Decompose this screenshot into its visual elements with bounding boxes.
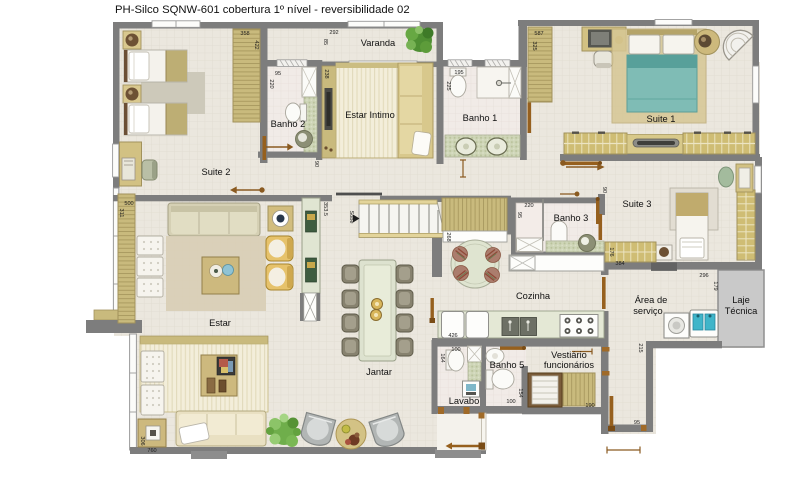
svg-text:384: 384 xyxy=(615,261,624,267)
svg-text:Lavabo: Lavabo xyxy=(449,396,480,406)
svg-text:serviço: serviço xyxy=(633,306,662,316)
svg-text:95: 95 xyxy=(634,420,640,426)
svg-text:760: 760 xyxy=(147,448,156,454)
svg-text:Varanda: Varanda xyxy=(361,38,396,48)
svg-text:268: 268 xyxy=(445,232,451,241)
svg-text:90: 90 xyxy=(313,161,319,167)
svg-text:325: 325 xyxy=(531,41,537,50)
svg-text:195: 195 xyxy=(454,70,463,76)
svg-text:306: 306 xyxy=(139,436,145,445)
svg-text:Banho 3: Banho 3 xyxy=(554,213,589,223)
svg-text:296: 296 xyxy=(699,273,708,279)
svg-text:Sobe: Sobe xyxy=(348,210,354,223)
svg-text:90: 90 xyxy=(601,187,607,193)
svg-text:Estar: Estar xyxy=(209,318,231,328)
svg-text:353.5: 353.5 xyxy=(322,202,328,216)
svg-text:164: 164 xyxy=(439,353,445,362)
svg-text:Cozinha: Cozinha xyxy=(516,291,551,301)
svg-text:292: 292 xyxy=(329,30,338,36)
svg-text:Suite 1: Suite 1 xyxy=(647,114,676,124)
svg-text:587: 587 xyxy=(534,31,543,37)
svg-text:Suite 2: Suite 2 xyxy=(202,167,231,177)
svg-text:Suite 3: Suite 3 xyxy=(623,199,652,209)
svg-text:311: 311 xyxy=(118,209,124,218)
svg-text:176: 176 xyxy=(608,247,614,256)
svg-text:PH-Silco SQNW-601 cobertura 1º: PH-Silco SQNW-601 cobertura 1º nível - r… xyxy=(115,4,410,16)
svg-text:Laje: Laje xyxy=(732,295,750,305)
svg-text:358: 358 xyxy=(240,31,249,37)
svg-text:Banho 2: Banho 2 xyxy=(271,119,306,129)
svg-text:85: 85 xyxy=(322,39,328,45)
svg-text:Técnica: Técnica xyxy=(725,306,758,316)
svg-text:154: 154 xyxy=(517,388,523,397)
svg-text:95: 95 xyxy=(516,212,522,218)
svg-text:Jantar: Jantar xyxy=(366,367,392,377)
svg-text:220: 220 xyxy=(524,203,533,209)
svg-text:Banho 1: Banho 1 xyxy=(463,113,498,123)
svg-text:funcionários: funcionários xyxy=(544,360,594,370)
svg-text:220: 220 xyxy=(268,79,274,88)
svg-text:100: 100 xyxy=(506,399,515,405)
svg-text:179: 179 xyxy=(712,281,718,290)
svg-text:Área de: Área de xyxy=(635,295,668,305)
svg-text:Estar Intimo: Estar Intimo xyxy=(345,110,395,120)
svg-text:238: 238 xyxy=(323,69,329,78)
svg-text:Banho 5: Banho 5 xyxy=(490,360,525,370)
svg-text:426: 426 xyxy=(448,333,457,339)
svg-text:95: 95 xyxy=(275,71,281,77)
svg-text:225: 225 xyxy=(445,81,451,90)
svg-text:Vestiário: Vestiário xyxy=(551,350,587,360)
svg-text:500: 500 xyxy=(124,201,133,207)
svg-text:190: 190 xyxy=(585,403,594,409)
svg-text:100: 100 xyxy=(451,347,460,353)
svg-text:422: 422 xyxy=(253,40,259,49)
svg-text:215: 215 xyxy=(637,343,643,352)
